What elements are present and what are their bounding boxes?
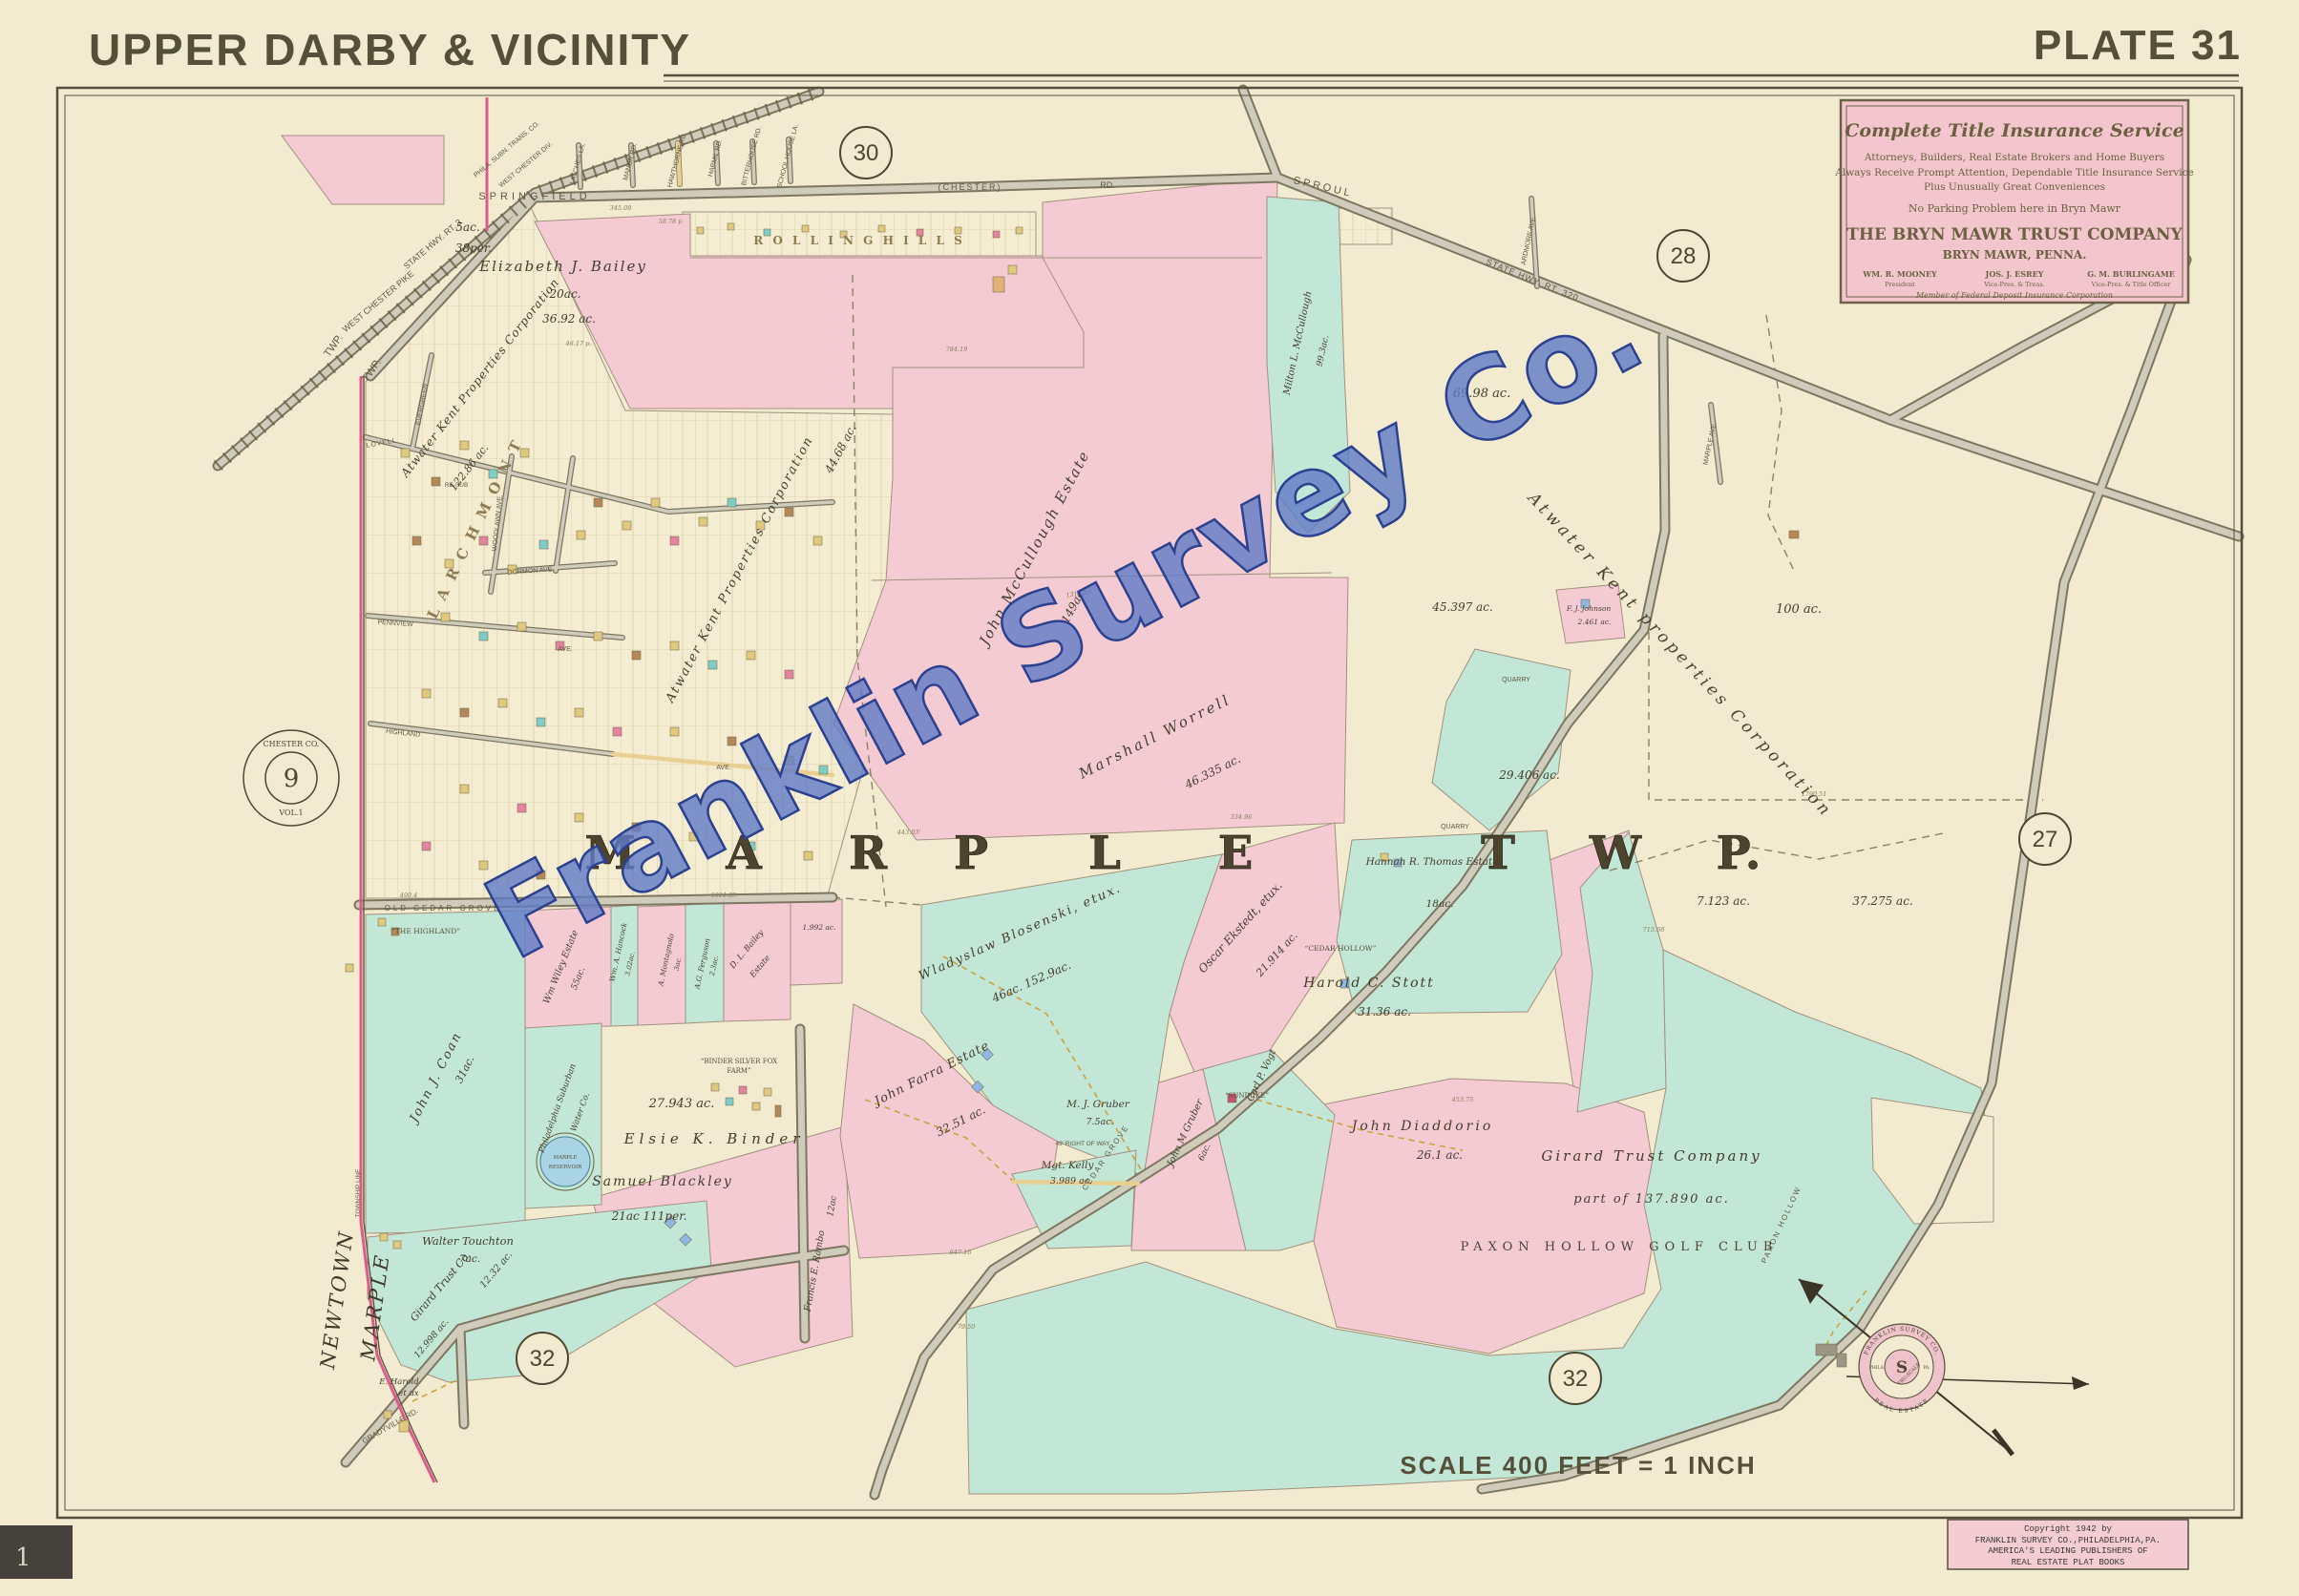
map-label: Hannah R. Thomas Estate <box>1365 856 1499 868</box>
map-label: 36.92 ac. <box>542 312 596 325</box>
map-label: 1790.51 <box>1802 790 1827 798</box>
compass-right-label: PA. <box>1923 1365 1930 1371</box>
map-label: 46.17 p. <box>565 340 592 347</box>
map-label: John Diaddorio <box>1349 1119 1494 1134</box>
map-label: P. <box>1717 827 1763 880</box>
map-label: MARPLE <box>553 1155 577 1161</box>
map-label: part of 137.890 ac. <box>1573 1192 1729 1207</box>
ad-officer-2-name: JOS. J. ESREY <box>1985 269 2044 279</box>
map-label: T <box>1481 827 1517 880</box>
ad-line2: Always Receive Prompt Attention, Dependa… <box>1834 167 2193 178</box>
map-label: Elsie K. Binder <box>623 1130 805 1147</box>
map-label: 1.992 ac. <box>803 923 836 932</box>
map-label: F. J. Johnson <box>1566 604 1612 613</box>
map-label: 49' RIGHT OF WAY <box>1055 1141 1110 1147</box>
map-label: 27.943 ac. <box>648 1097 715 1111</box>
map-label: 345.08 <box>610 204 632 212</box>
plate-join-number: 32 <box>1563 1366 1589 1392</box>
map-label: RD. <box>1100 180 1115 190</box>
map-label: 29.406 ac. <box>1498 768 1560 782</box>
map-label: 38per. <box>455 241 492 255</box>
plate-join-number: 30 <box>854 140 879 166</box>
map-label: Mgt. Kelly <box>1041 1160 1095 1171</box>
map-label: E <box>1218 827 1255 880</box>
map-label: 453.75 <box>1451 1096 1474 1103</box>
plate-join-number: 28 <box>1671 243 1697 269</box>
ad-officer-3-name: G. M. BURLINGAME <box>2087 269 2175 279</box>
copyright-line-1: Copyright 1942 by <box>2024 1524 2112 1534</box>
map-label: AVE. <box>558 646 572 653</box>
map-label: 7.5ac. <box>1086 1117 1113 1127</box>
chester-volume-label: VOL.1 <box>278 808 303 817</box>
map-label: 3.989 ac. <box>1050 1176 1092 1186</box>
ad-officer-1-title: President <box>1885 281 1915 288</box>
plate-join-circle: 27 <box>2019 813 2071 865</box>
ad-officer-1-name: WM. R. MOONEY <box>1862 269 1937 279</box>
map-label: M. J. Gruber <box>1065 1099 1130 1110</box>
map-label: Girard Trust Company <box>1541 1147 1761 1165</box>
map-label: 715.66 <box>1643 926 1665 934</box>
map-label: 2.461 ac. <box>1577 618 1612 626</box>
plate-number: PLATE 31 <box>2034 22 2242 69</box>
map-label: 21ac 111per. <box>611 1209 687 1223</box>
plate-join-circle: 32 <box>1550 1353 1601 1404</box>
ad-line3: Plus Unusually Great Conveniences <box>1924 181 2105 193</box>
map-label: 7.123 ac. <box>1697 894 1750 908</box>
copyright-line-3: AMERICA'S LEADING PUBLISHERS OF <box>1988 1546 2147 1556</box>
map-label: 1911.05 <box>711 892 737 899</box>
map-label: R O L L I N G H I L L S <box>753 234 965 247</box>
map-canvas: CHESTER CO. 9 VOL.1 3028273232 SPRINGFIE… <box>0 0 2299 1596</box>
map-label: 45.397 ac. <box>1431 600 1493 614</box>
map-label: (CHESTER) <box>939 182 1002 192</box>
map-label: 79.50 <box>958 1323 976 1331</box>
map-label: E. Harold <box>378 1377 419 1387</box>
map-label: W <box>1589 827 1643 880</box>
map-label: SPRINGFIELD <box>478 191 590 202</box>
chester-co-label: CHESTER CO. <box>264 740 320 748</box>
map-label: et ux <box>398 1389 419 1398</box>
plat-map-sheet: CHESTER CO. 9 VOL.1 3028273232 SPRINGFIE… <box>0 0 2299 1596</box>
plate-join-circle: 28 <box>1657 230 1709 282</box>
map-label: FARM” <box>727 1067 751 1075</box>
map-label: 334.96 <box>1231 813 1253 821</box>
map-label: 443.03' <box>896 829 921 836</box>
chester-volume-number: 9 <box>284 765 300 793</box>
map-label: “THE HIGHLAND” <box>391 927 460 935</box>
map-label: L <box>1088 827 1123 880</box>
plate-join-number: 27 <box>2033 827 2058 852</box>
ad-officer-3-title: Vice-Pres. & Title Officer <box>2091 281 2172 288</box>
map-label: 100 ac. <box>1776 602 1822 617</box>
compass-left-label: PHILA. <box>1869 1365 1886 1371</box>
map-label: 647.16 <box>950 1249 972 1256</box>
map-label: 5ac. <box>455 220 479 234</box>
map-label: “CEDAR HOLLOW” <box>1305 944 1377 953</box>
page-corner-tab: 1 <box>0 1525 73 1579</box>
page-tab-number: 1 <box>15 1543 32 1572</box>
map-label: Harold C. Stott <box>1302 976 1435 991</box>
map-label: “SUNDUKE” <box>1225 1092 1269 1100</box>
map-label: Elizabeth J. Bailey <box>478 258 647 275</box>
plate-join-circle: 30 <box>840 127 892 178</box>
copyright-box: Copyright 1942 by FRANKLIN SURVEY CO.,PH… <box>1948 1520 2188 1569</box>
map-label: 784.19 <box>946 346 968 353</box>
map-label: Walter Touchton <box>422 1234 514 1248</box>
map-label: 37.275 ac. <box>1852 894 1913 908</box>
map-label: TOWNSHIP LINE <box>355 1168 362 1218</box>
map-label: 26.1 ac. <box>1416 1148 1463 1162</box>
plate-join-circle: 32 <box>517 1333 568 1384</box>
map-label: QUARRY <box>1502 677 1530 683</box>
copyright-line-4: REAL ESTATE PLAT BOOKS <box>2012 1558 2125 1567</box>
ad-line4: No Parking Problem here in Bryn Mawr <box>1909 202 2121 215</box>
ad-headline: Complete Title Insurance Service <box>1845 120 2183 141</box>
map-label: “BINDER SILVER FOX <box>701 1058 777 1065</box>
ad-footer: Member of Federal Deposit Insurance Corp… <box>1915 291 2113 300</box>
map-label: Samuel Blackley <box>592 1174 733 1189</box>
map-label: 31.36 ac. <box>1358 1005 1411 1018</box>
ad-company-city: BRYN MAWR, PENNA. <box>1943 248 2087 262</box>
ad-line1: Attorneys, Builders, Real Estate Brokers… <box>1864 152 2164 163</box>
map-label: P <box>954 827 990 880</box>
map-label: PAXON HOLLOW GOLF CLUB <box>1461 1240 1779 1254</box>
copyright-line-2: FRANKLIN SURVEY CO.,PHILADELPHIA,PA. <box>1975 1536 2161 1545</box>
plate-join-number: 32 <box>530 1346 556 1372</box>
map-label: 58.78 p <box>659 218 684 225</box>
ad-company-name: THE BRYN MAWR TRUST COMPANY <box>1846 225 2183 244</box>
map-label: 18ac. <box>1426 898 1454 910</box>
page-title: UPPER DARBY & VICINITY <box>89 25 691 74</box>
map-label: QUARRY <box>1441 824 1469 830</box>
map-label: 490.4 <box>399 892 418 899</box>
scale-note: SCALE 400 FEET = 1 INCH <box>1400 1451 1756 1480</box>
ad-box-bryn-mawr-trust: Complete Title Insurance Service Attorne… <box>1834 100 2193 303</box>
map-label: RESERVOIR <box>549 1165 582 1170</box>
ad-officer-2-title: Vice-Pres. & Treas. <box>1983 281 2045 288</box>
map-label: R <box>849 827 889 880</box>
